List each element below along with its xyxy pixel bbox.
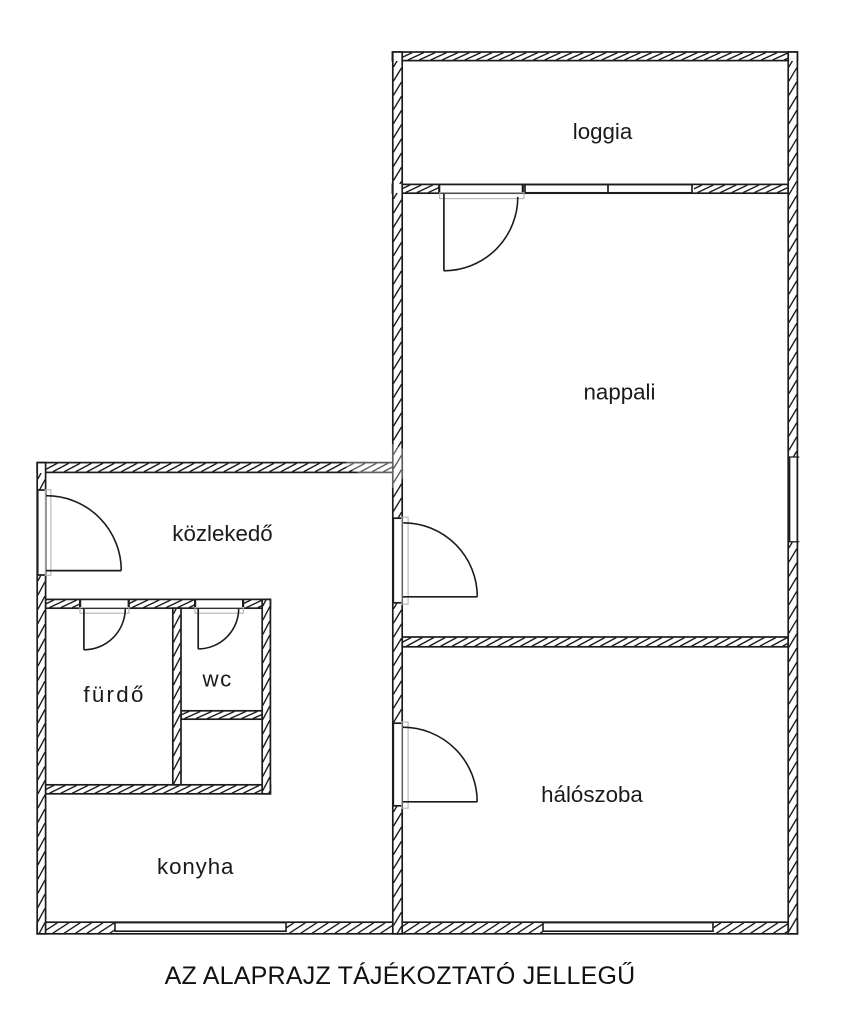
svg-text:AZ ALAPRAJZ TÁJÉKOZTATÓ JELLEG: AZ ALAPRAJZ TÁJÉKOZTATÓ JELLEGŰ	[165, 961, 636, 990]
svg-text:fürdő: fürdő	[83, 682, 145, 707]
svg-text:wc: wc	[201, 667, 232, 692]
svg-text:konyha: konyha	[157, 854, 234, 879]
svg-text:hálószoba: hálószoba	[541, 782, 643, 807]
svg-text:közlekedő: közlekedő	[172, 521, 272, 546]
svg-text:nappali: nappali	[584, 380, 656, 405]
svg-text:loggia: loggia	[573, 119, 633, 144]
